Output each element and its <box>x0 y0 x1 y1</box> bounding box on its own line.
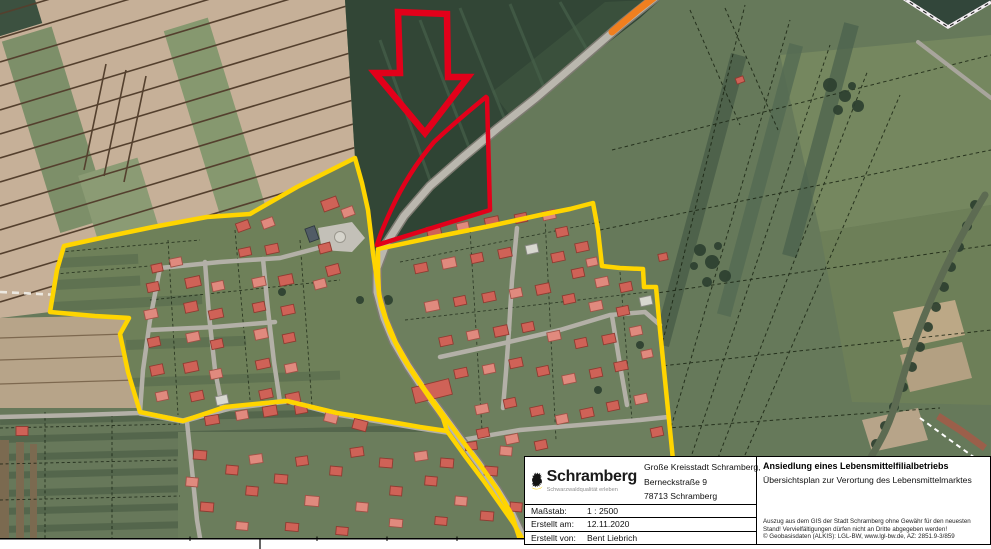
title-block-left: Schramberg Schwarzwaldqualität erleben G… <box>525 457 756 544</box>
house <box>619 281 633 292</box>
house <box>155 390 169 401</box>
house <box>470 252 484 263</box>
created-date-row: Erstellt am: 12.11.2020 <box>525 518 756 531</box>
house <box>254 328 269 340</box>
house <box>440 458 454 468</box>
house <box>356 502 369 512</box>
house <box>414 451 428 462</box>
created-by-row: Erstellt von: Bent Liebrich <box>525 532 756 544</box>
house <box>589 367 603 378</box>
house <box>235 410 248 421</box>
title-block-right: Ansiedlung eines Lebensmittelfilialbetri… <box>756 457 990 544</box>
west-fields <box>0 316 140 412</box>
house <box>616 305 630 316</box>
logo-tagline: Schwarzwaldqualität erleben <box>547 487 637 493</box>
house <box>209 368 223 379</box>
disclaimer-line-2: Stand! Vervielfältigungen dürfen nicht a… <box>763 526 986 534</box>
scale-row: Maßstab: 1 : 2500 <box>525 505 756 518</box>
house <box>555 226 569 237</box>
house <box>555 413 569 424</box>
house <box>210 338 224 349</box>
house <box>509 287 523 298</box>
house <box>435 516 448 525</box>
house <box>204 414 219 425</box>
house <box>211 280 225 291</box>
house <box>246 486 259 496</box>
schramberg-logo: Schramberg Schwarzwaldqualität erleben <box>525 457 637 504</box>
logo-swoosh <box>532 486 543 489</box>
house <box>252 301 266 312</box>
house <box>641 349 653 359</box>
disclaimer: Auszug aus dem GIS der Stadt Schramberg … <box>763 518 986 541</box>
house <box>466 329 480 340</box>
house <box>629 325 643 336</box>
house <box>658 253 668 262</box>
house <box>146 281 160 292</box>
house <box>390 486 403 496</box>
logo-wordmark: Schramberg <box>547 469 637 485</box>
map-title: Ansiedlung eines Lebensmittelfilialbetri… <box>763 461 984 471</box>
house <box>562 293 576 304</box>
house <box>606 400 620 411</box>
house <box>534 439 548 450</box>
scale-value: 1 : 2500 <box>587 506 618 516</box>
created-date-value: 12.11.2020 <box>587 519 629 529</box>
house <box>503 397 517 408</box>
house <box>571 267 585 278</box>
disclaimer-line-1: Auszug aus dem GIS der Stadt Schramberg … <box>763 518 986 526</box>
house <box>200 502 214 512</box>
created-by-label: Erstellt von: <box>531 533 587 543</box>
house <box>379 458 393 468</box>
house <box>147 336 161 347</box>
house <box>586 257 598 267</box>
house <box>350 447 364 458</box>
house <box>295 456 308 467</box>
house <box>215 394 229 405</box>
address-line-2: Berneckstraße 9 <box>644 475 761 490</box>
house <box>480 511 494 521</box>
map-sheet: Schramberg Schwarzwaldqualität erleben G… <box>0 0 991 549</box>
house <box>389 518 403 527</box>
house <box>150 364 165 376</box>
created-by-value: Bent Liebrich <box>587 533 637 543</box>
house <box>249 454 263 465</box>
house <box>184 301 199 313</box>
house <box>482 363 496 374</box>
house <box>284 362 298 373</box>
house <box>500 446 513 456</box>
disclaimer-line-3: © Geobasisdaten (ALKIS): LGL-BW, www.lgl… <box>763 533 986 541</box>
house <box>639 295 653 306</box>
address-block: Große Kreisstadt Schramberg, Berneckstra… <box>637 457 763 504</box>
house <box>336 526 349 535</box>
house <box>16 427 28 436</box>
house <box>536 365 550 376</box>
house <box>574 337 588 348</box>
house <box>330 466 343 476</box>
map-subtitle: Übersichtsplan zur Verortung des Lebensm… <box>763 475 984 485</box>
house <box>425 476 438 486</box>
house <box>186 477 199 487</box>
house <box>274 474 288 484</box>
house <box>236 521 249 530</box>
house <box>305 495 320 506</box>
house <box>650 426 664 437</box>
address-line-1: Große Kreisstadt Schramberg, <box>644 460 761 475</box>
house <box>262 405 278 417</box>
map-title-block: Schramberg Schwarzwaldqualität erleben G… <box>524 456 991 545</box>
house <box>193 450 207 460</box>
house <box>455 496 468 506</box>
griffin-coat-of-arms-icon <box>530 461 544 501</box>
house <box>525 243 539 254</box>
address-line-3: 78713 Schramberg <box>644 489 761 504</box>
house <box>151 263 163 273</box>
house <box>521 321 535 332</box>
created-date-label: Erstellt am: <box>531 519 587 529</box>
scale-label: Maßstab: <box>531 506 587 516</box>
house <box>226 465 239 475</box>
house <box>476 427 490 438</box>
house <box>285 522 299 531</box>
meta-rows: Maßstab: 1 : 2500 Erstellt am: 12.11.202… <box>525 505 756 544</box>
house <box>453 295 467 306</box>
house <box>282 332 296 343</box>
